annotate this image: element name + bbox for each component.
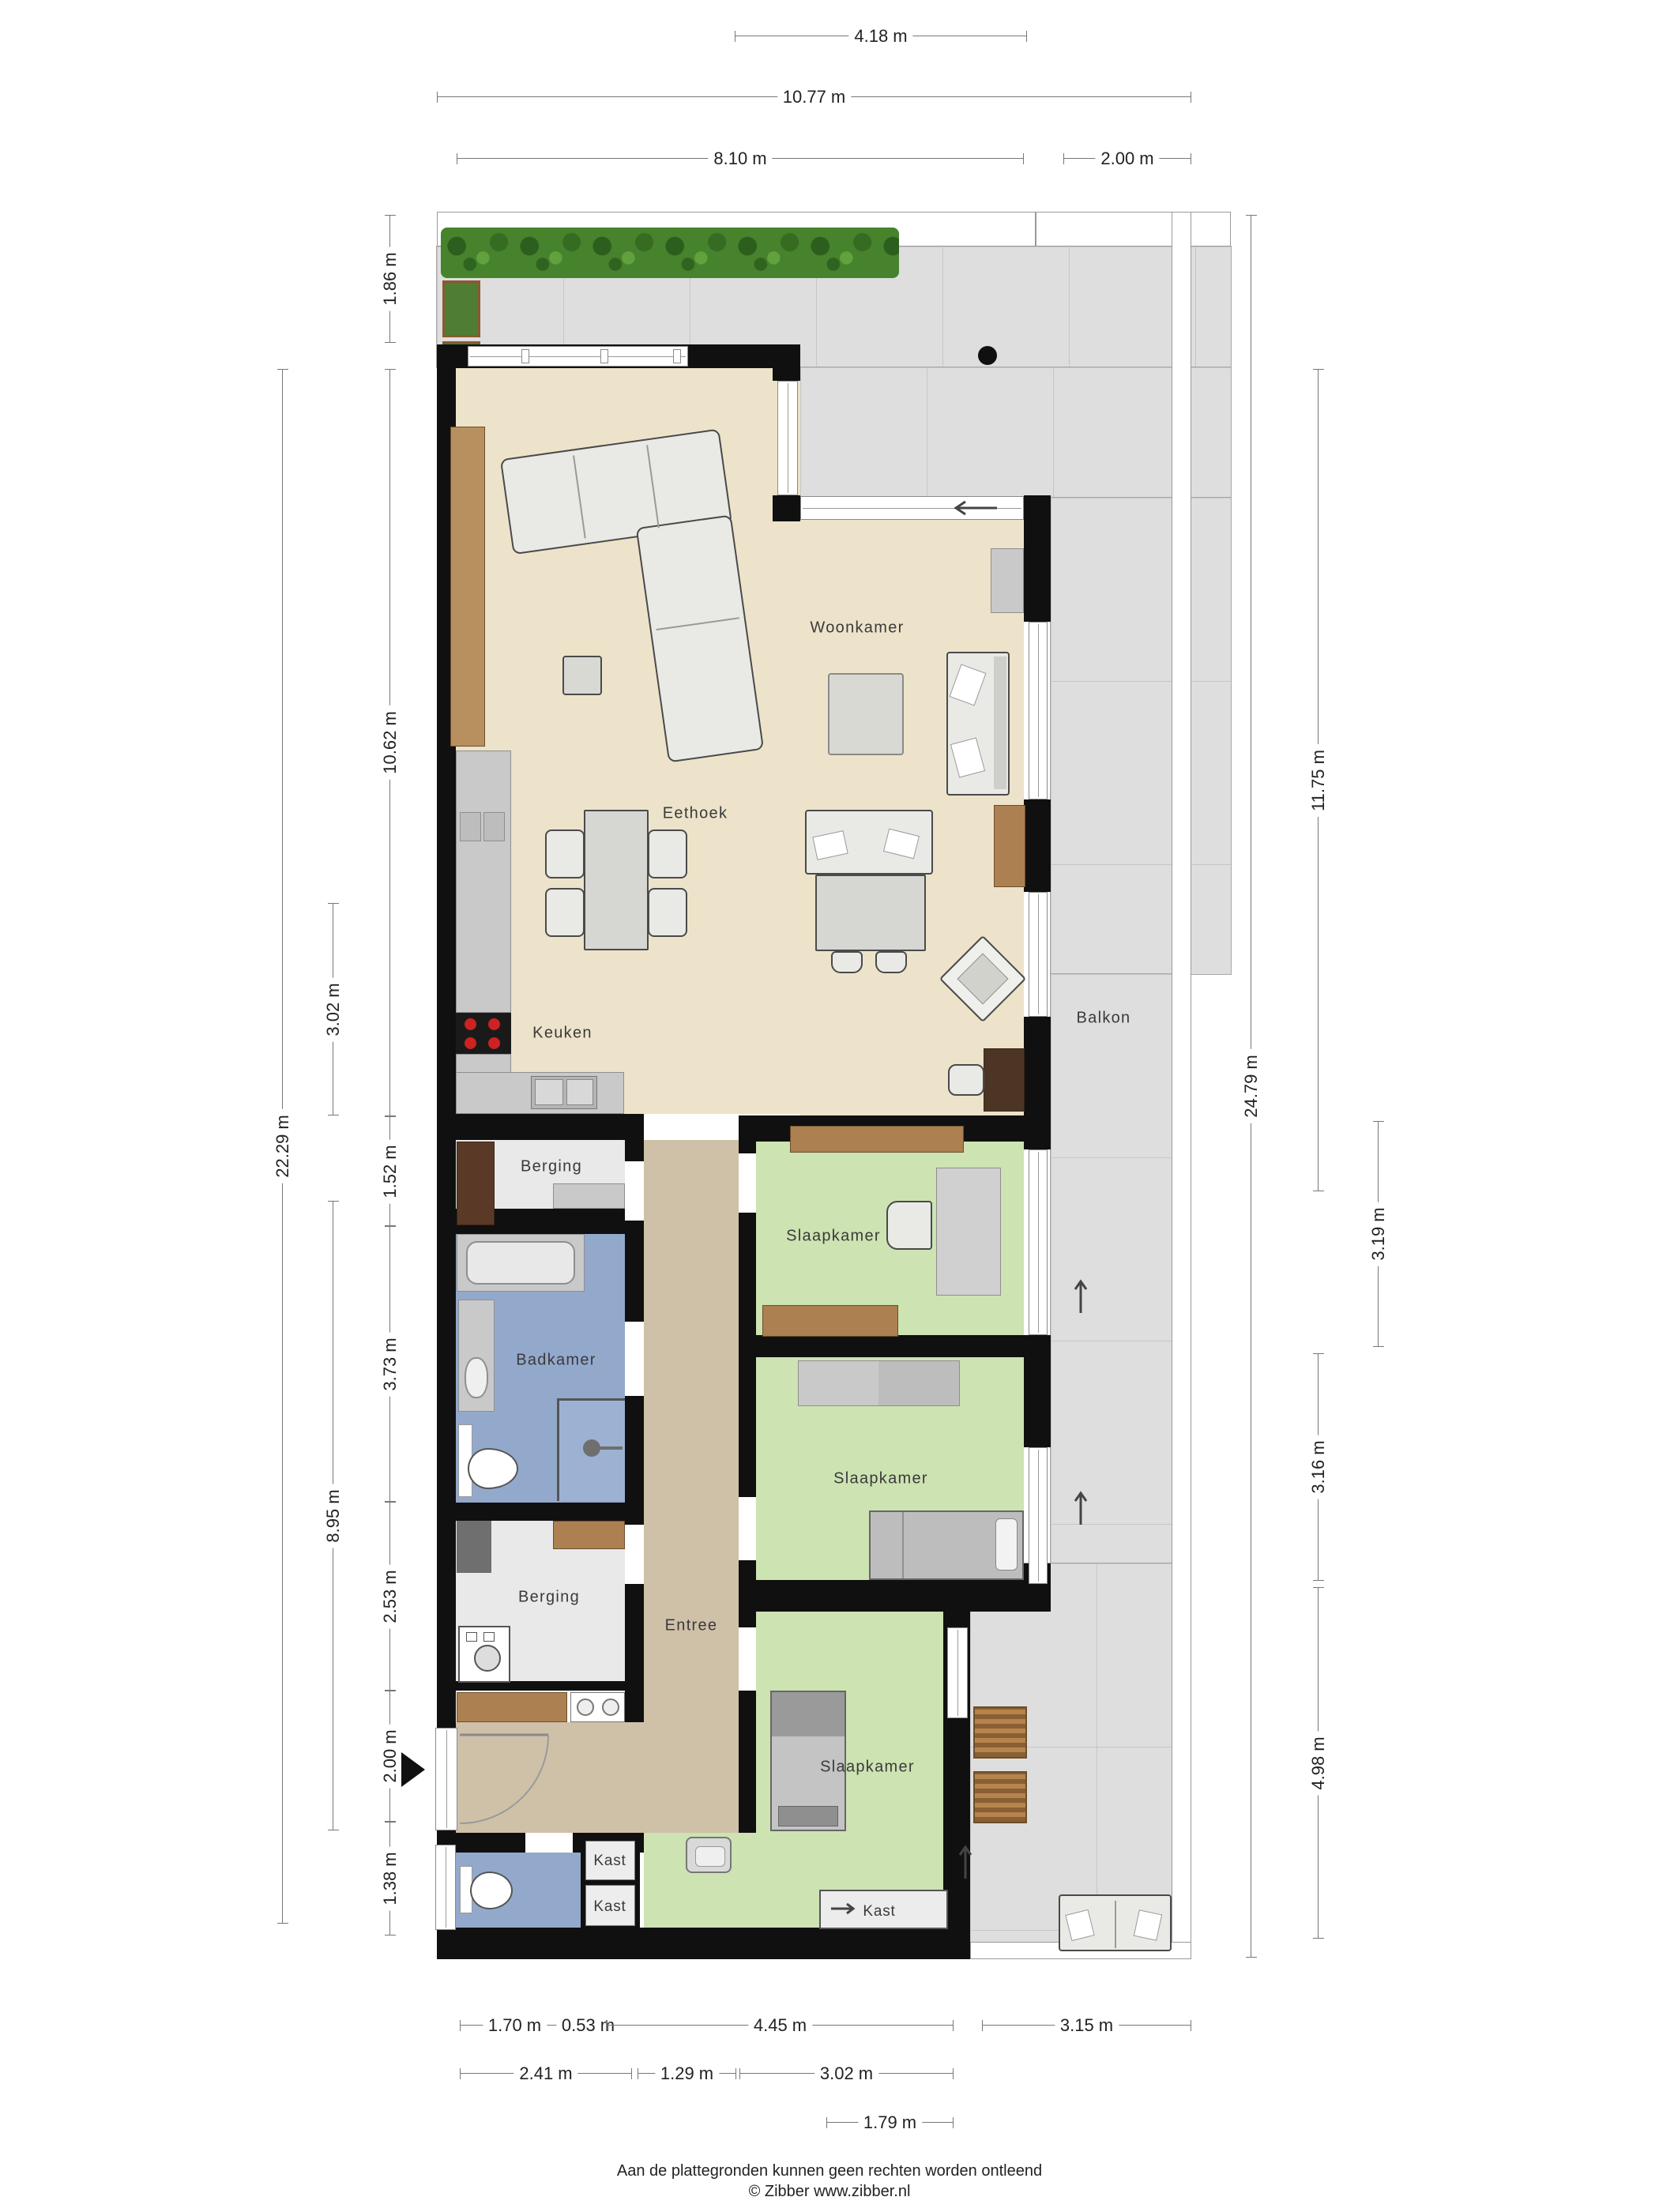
room-label-slaapkamer-2: Slaapkamer xyxy=(833,1470,928,1488)
dimension-right-3.16: 3.16 m xyxy=(1318,1353,1319,1581)
dimension-left-22.29: 22.29 m xyxy=(282,369,283,1924)
floorplan-page: Woonkamer Eethoek Keuken Berging Badkame… xyxy=(0,0,1659,2212)
room-label-woonkamer: Woonkamer xyxy=(810,619,904,638)
door-arrow-icon xyxy=(1075,1281,1086,1313)
dimension-right-3.19: 3.19 m xyxy=(1378,1121,1379,1347)
dimension-top-4.18: 4.18 m xyxy=(735,36,1027,36)
room-label-keuken: Keuken xyxy=(532,1025,592,1043)
dimension-left-1.38: 1.38 m xyxy=(389,1822,390,1935)
dimension-bottom-0.53: 0.53 m xyxy=(570,2025,607,2026)
copyright-text: © Zibber www.zibber.nl xyxy=(0,2183,1659,2201)
room-label-balkon: Balkon xyxy=(1077,1010,1131,1028)
dimension-bottom-1.70: 1.70 m xyxy=(460,2025,570,2026)
dimension-top-8.10: 8.10 m xyxy=(457,158,1024,159)
door-arrow-icon xyxy=(1075,1493,1086,1525)
annotation-overlay xyxy=(0,0,1659,2212)
kast-arrow-icon xyxy=(831,1904,853,1913)
room-label-slaapkamer-1: Slaapkamer xyxy=(786,1228,881,1246)
dimension-left-10.62: 10.62 m xyxy=(389,369,390,1116)
room-label-entree: Entree xyxy=(665,1617,718,1635)
dimension-bottom-4.45: 4.45 m xyxy=(607,2025,954,2026)
dimension-right-4.98: 4.98 m xyxy=(1318,1587,1319,1939)
entrance-door-arc xyxy=(460,1735,548,1823)
dimension-left-2.00: 2.00 m xyxy=(389,1691,390,1822)
room-label-kast-3: Kast xyxy=(863,1903,895,1920)
dimension-bottom-1.29: 1.29 m xyxy=(638,2073,736,2074)
dimension-left-3.02: 3.02 m xyxy=(333,903,333,1115)
dimension-bottom-3.02: 3.02 m xyxy=(739,2073,954,2074)
door-arrow-icon xyxy=(960,1847,971,1879)
room-label-badkamer: Badkamer xyxy=(516,1352,596,1370)
dimension-left-3.73: 3.73 m xyxy=(389,1226,390,1502)
room-label-slaapkamer-3: Slaapkamer xyxy=(820,1759,915,1777)
dimension-left-1.52: 1.52 m xyxy=(389,1116,390,1226)
dimension-right-11.75: 11.75 m xyxy=(1318,369,1319,1191)
dimension-left-1.86: 1.86 m xyxy=(389,215,390,343)
room-label-berging-2: Berging xyxy=(518,1589,580,1607)
room-label-eethoek: Eethoek xyxy=(663,805,728,823)
dimension-right-24.79: 24.79 m xyxy=(1251,215,1251,1958)
dimension-left-2.53: 2.53 m xyxy=(389,1502,390,1691)
room-label-kast-2: Kast xyxy=(593,1898,626,1916)
dimension-bottom-2.41: 2.41 m xyxy=(460,2073,632,2074)
room-label-kast-1: Kast xyxy=(593,1853,626,1870)
dimension-top-2.00: 2.00 m xyxy=(1063,158,1191,159)
slider-arrow-icon xyxy=(956,502,997,514)
dimension-left-8.95: 8.95 m xyxy=(333,1201,333,1830)
disclaimer-text: Aan de plattegronden kunnen geen rechten… xyxy=(0,2162,1659,2180)
room-label-berging-1: Berging xyxy=(521,1158,582,1176)
dimension-top-10.77: 10.77 m xyxy=(437,96,1191,97)
dimension-bottom-1.79: 1.79 m xyxy=(826,2122,954,2123)
dimension-bottom-3.15: 3.15 m xyxy=(982,2025,1191,2026)
